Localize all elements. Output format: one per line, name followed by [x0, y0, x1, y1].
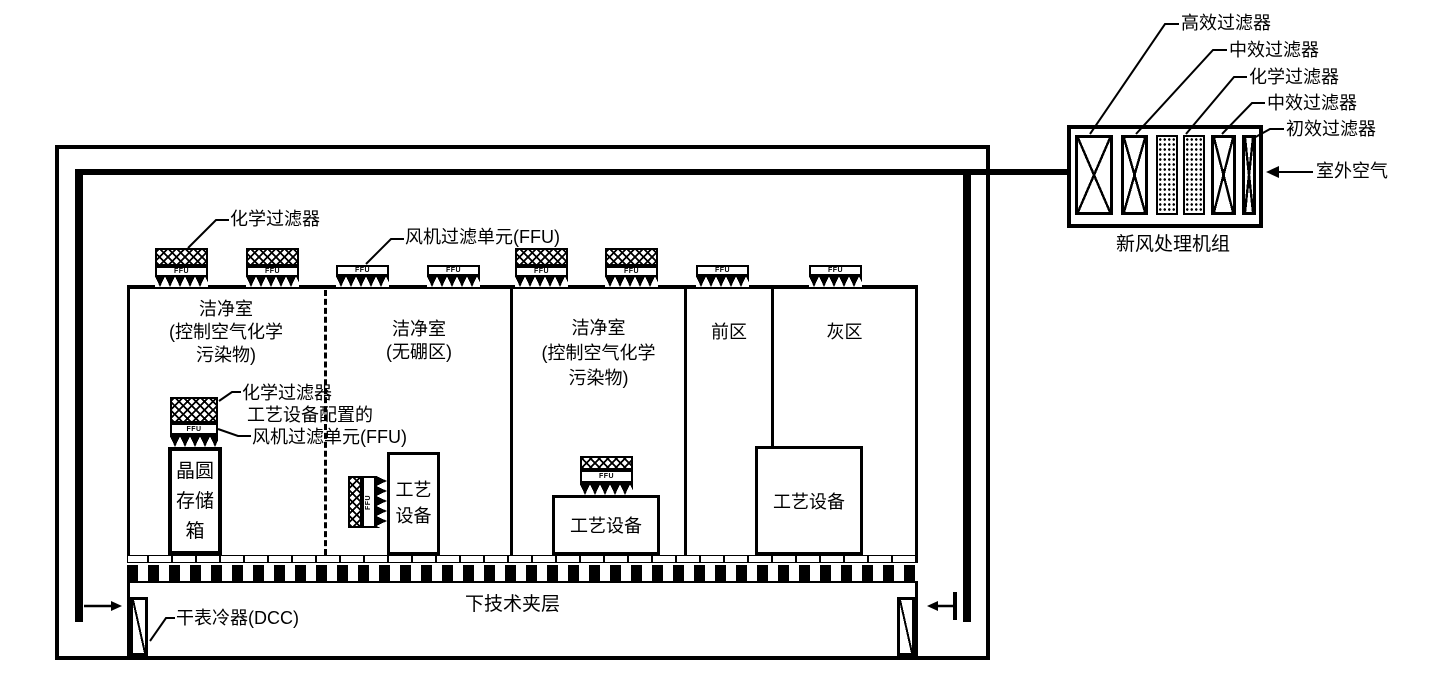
pre-filter [1242, 135, 1256, 215]
tool-ffu-label-line2: 风机过滤单元(FFU) [252, 427, 407, 449]
ffu-label: FFU [174, 268, 189, 275]
wafer-box-line1: 晶圆 [172, 457, 218, 487]
ceiling-chemical-filter-label: 化学过滤器 [230, 209, 320, 231]
label-outdoor-air: 室外空气 [1316, 161, 1388, 183]
outdoor-air-arrowhead [1266, 166, 1279, 178]
side-ffu-box: FFU [362, 476, 376, 528]
equipment3-label: 工艺设备 [570, 512, 642, 538]
ffu-box: FFU [515, 266, 568, 277]
medium-filter-2 [1211, 135, 1236, 215]
chemical-filter-block [605, 248, 658, 266]
supply-duct-left [75, 169, 83, 622]
room-name-cleanroom-right: 洁净室 (控制空气化学 污染物) [513, 316, 684, 391]
raised-floor-tiles [127, 555, 918, 563]
plenum-label: 下技术夹层 [465, 594, 560, 617]
tool-ffu-label-line1: 工艺设备配置的 [247, 405, 373, 427]
ffu-label: FFU [355, 267, 370, 274]
label-medium-filter-2: 中效过滤器 [1267, 93, 1357, 115]
wafer-box-line3: 箱 [172, 517, 218, 547]
raised-floor-pedestals [127, 565, 918, 583]
tool-ffu-box: FFU [170, 423, 218, 435]
chemical-filter-block [246, 248, 299, 266]
equip-ffu-zigzag [580, 483, 633, 495]
dcc-right [897, 597, 915, 656]
equip-chemical-filter-block [580, 456, 633, 470]
ffu-label: FFU [715, 267, 730, 274]
ffu-airflow-zigzag [605, 277, 658, 287]
cleanroom-wall-4 [771, 285, 774, 446]
ffu-label: FFU [265, 268, 280, 275]
ffu-airflow-zigzag [427, 276, 480, 287]
ffu-label: FFU [186, 426, 201, 433]
ffu-label: FFU [828, 267, 843, 274]
equip-ffu-box: FFU [580, 470, 633, 483]
process-equipment-cleanroom-right: 工艺设备 [552, 495, 660, 555]
ffu-box: FFU [155, 266, 208, 277]
side-ffu-zigzag [376, 476, 387, 528]
room1-line3: 污染物) [130, 344, 322, 367]
plenum-wall-right [915, 583, 918, 656]
room3-line1: 洁净室 [513, 316, 684, 341]
fresh-air-unit-caption: 新风处理机组 [1073, 234, 1273, 257]
process-equipment-gray-zone: 工艺设备 [755, 446, 863, 555]
ffu-box: FFU [336, 265, 389, 276]
label-hepa-filter: 高效过滤器 [1181, 13, 1271, 35]
ffu-airflow-zigzag [696, 276, 749, 287]
room-name-front-zone: 前区 [687, 322, 771, 344]
room2-line1: 洁净室 [330, 318, 508, 341]
room-name-gray-zone: 灰区 [774, 322, 915, 344]
ffu-airflow-zigzag [336, 276, 389, 287]
hepa-filter [1075, 135, 1113, 215]
ffu-label: FFU [624, 268, 639, 275]
ffu-airflow-zigzag [246, 277, 299, 287]
ffu-box: FFU [696, 265, 749, 276]
ffu-airflow-zigzag [809, 276, 862, 287]
label-chemical-filter: 化学过滤器 [1249, 67, 1339, 89]
wafer-storage-box: 晶圆 存储 箱 [168, 447, 222, 555]
chemical-filter-column-2 [1183, 135, 1205, 215]
room-name-cleanroom-left: 洁净室 (控制空气化学 污染物) [130, 298, 322, 367]
dcc-left [130, 597, 148, 656]
side-chemical-filter-block [348, 476, 362, 528]
medium-filter-1 [1121, 135, 1148, 215]
room1-line2: (控制空气化学 [130, 321, 322, 344]
chemical-filter-block [155, 248, 208, 266]
leader-medium1 [1136, 50, 1227, 134]
equipment2-line2: 设备 [390, 503, 437, 529]
tool-chemical-filter-label: 化学过滤器 [242, 383, 332, 405]
cleanroom-wall-right [915, 285, 918, 555]
room1-line1: 洁净室 [130, 298, 322, 321]
process-equipment-boron-room: 工艺 设备 [387, 452, 440, 555]
chemical-filter-column-1 [1156, 135, 1178, 215]
tool-ffu-zigzag [170, 435, 218, 447]
supply-duct-right [963, 169, 971, 622]
ffu-label: FFU [534, 268, 549, 275]
room3-line3: 污染物) [513, 366, 684, 391]
equipment4-label: 工艺设备 [773, 488, 845, 514]
ceiling-ffu-label: 风机过滤单元(FFU) [405, 227, 560, 249]
ffu-box: FFU [809, 265, 862, 276]
room2-line2: (无硼区) [330, 341, 508, 364]
label-pre-filter: 初效过滤器 [1286, 119, 1376, 141]
leader-hepa [1090, 24, 1179, 134]
chemical-filter-block [515, 248, 568, 266]
wafer-box-line2: 存储 [172, 487, 218, 517]
ffu-airflow-zigzag [155, 277, 208, 287]
ffu-label: FFU [366, 494, 373, 509]
equipment2-line1: 工艺 [390, 477, 437, 503]
ffu-box: FFU [427, 265, 480, 276]
room3-line2: (控制空气化学 [513, 341, 684, 366]
ffu-box: FFU [605, 266, 658, 277]
ffu-box: FFU [246, 266, 299, 277]
ffu-label: FFU [599, 473, 614, 480]
cleanroom-airflow-diagram: FFU FFU FFU FFU FFU FFU FFU FFU 化学过滤器 风机… [0, 0, 1429, 685]
ffu-airflow-zigzag [515, 277, 568, 287]
supply-duct-top [75, 169, 1067, 175]
room-name-cleanroom-boron-free: 洁净室 (无硼区) [330, 318, 508, 364]
tool-chemical-filter-block [170, 397, 218, 423]
ffu-label: FFU [446, 267, 461, 274]
label-medium-filter-1: 中效过滤器 [1229, 40, 1319, 62]
dcc-label: 干表冷器(DCC) [176, 608, 299, 630]
